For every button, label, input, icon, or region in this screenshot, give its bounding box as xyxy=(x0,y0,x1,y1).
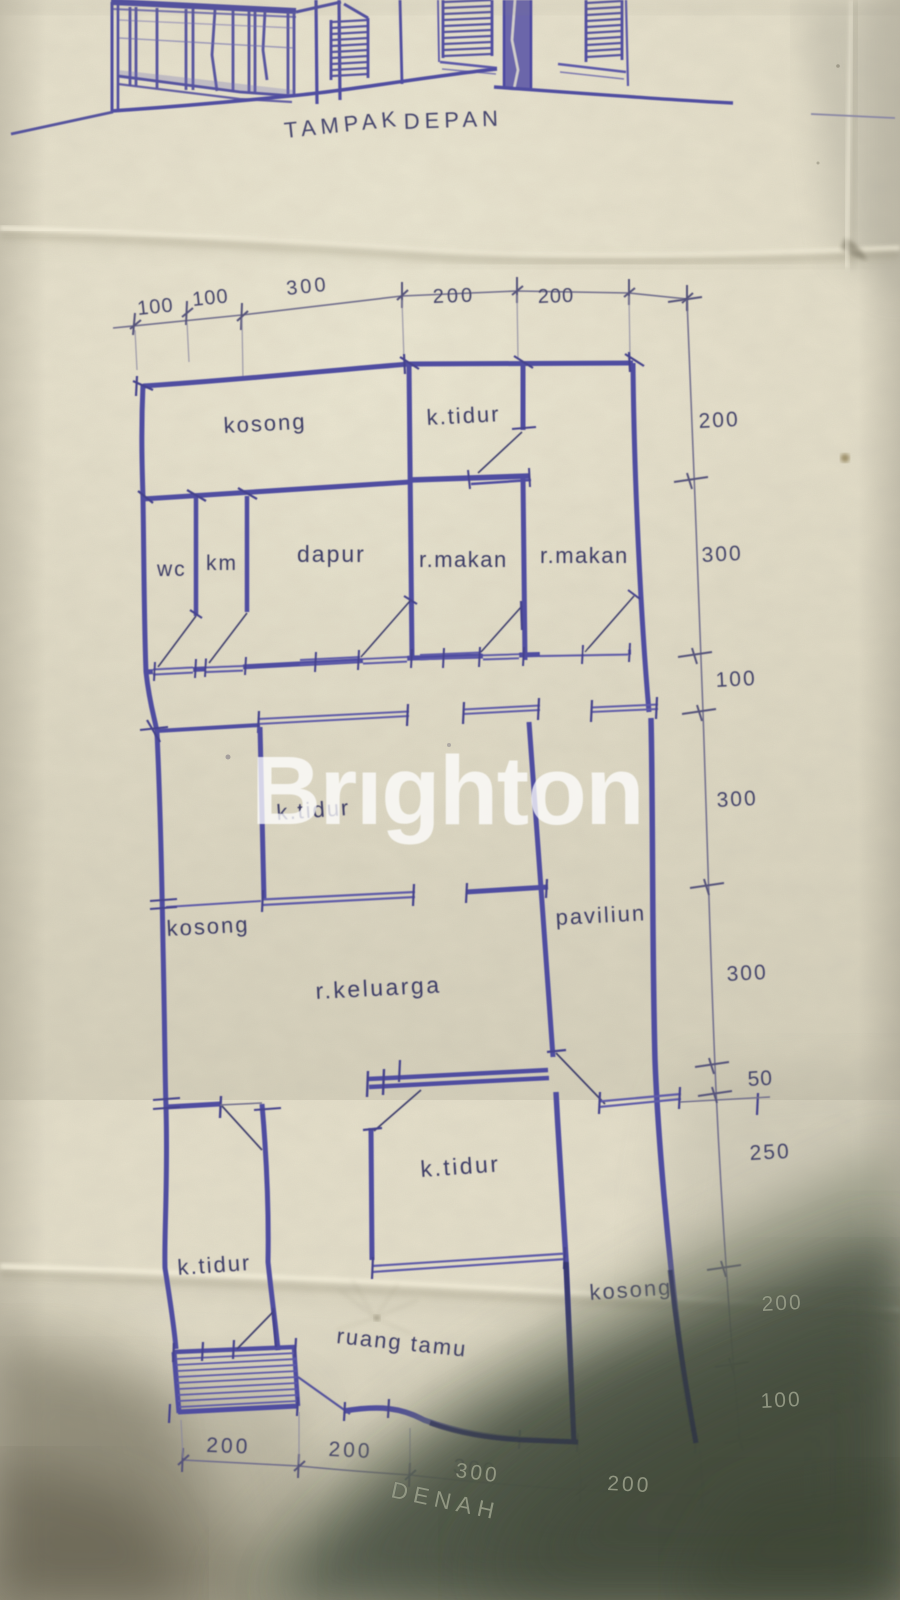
svg-text:200: 200 xyxy=(432,285,475,308)
svg-text:wc: wc xyxy=(156,558,187,581)
svg-text:100: 100 xyxy=(191,285,229,311)
svg-text:kosong: kosong xyxy=(166,912,250,941)
svg-text:50: 50 xyxy=(747,1067,774,1091)
svg-text:200: 200 xyxy=(607,1472,652,1497)
svg-text:200: 200 xyxy=(206,1434,251,1459)
svg-text:250: 250 xyxy=(749,1140,791,1165)
svg-text:Brıghton: Brıghton xyxy=(251,736,643,845)
svg-text:kosong: kosong xyxy=(223,409,307,438)
svg-text:DEPAN: DEPAN xyxy=(403,106,503,134)
svg-text:100: 100 xyxy=(760,1388,802,1413)
svg-text:dapur: dapur xyxy=(297,541,366,567)
svg-text:200: 200 xyxy=(698,408,740,433)
svg-text:k.tidur: k.tidur xyxy=(426,401,501,430)
svg-text:300: 300 xyxy=(716,787,758,812)
svg-text:km: km xyxy=(206,552,238,575)
svg-text:k.tidur: k.tidur xyxy=(177,1250,252,1280)
svg-text:300: 300 xyxy=(726,961,768,986)
svg-text:300: 300 xyxy=(285,274,329,300)
svg-text:r.makan: r.makan xyxy=(419,547,508,572)
svg-text:200: 200 xyxy=(761,1291,803,1316)
svg-text:100: 100 xyxy=(715,667,757,692)
svg-text:200: 200 xyxy=(537,285,574,308)
svg-text:r.makan: r.makan xyxy=(540,543,629,568)
svg-text:100: 100 xyxy=(136,294,174,320)
svg-text:300: 300 xyxy=(701,542,743,567)
svg-text:paviliun: paviliun xyxy=(555,900,647,930)
